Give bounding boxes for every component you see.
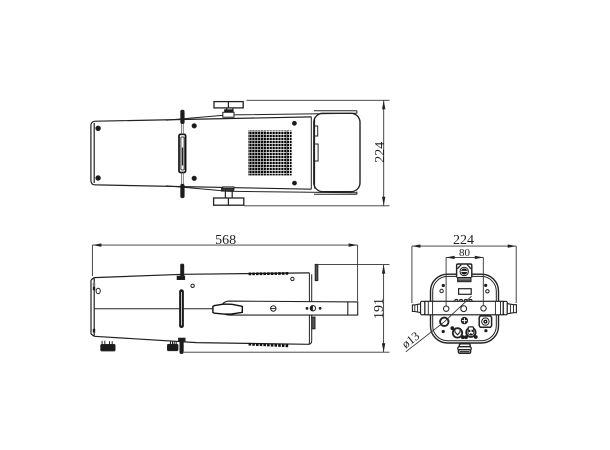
svg-text:568: 568: [215, 233, 236, 248]
svg-text:191: 191: [372, 298, 387, 319]
svg-text:224: 224: [453, 233, 474, 248]
svg-text:224: 224: [373, 142, 388, 163]
svg-text:80: 80: [459, 247, 471, 259]
